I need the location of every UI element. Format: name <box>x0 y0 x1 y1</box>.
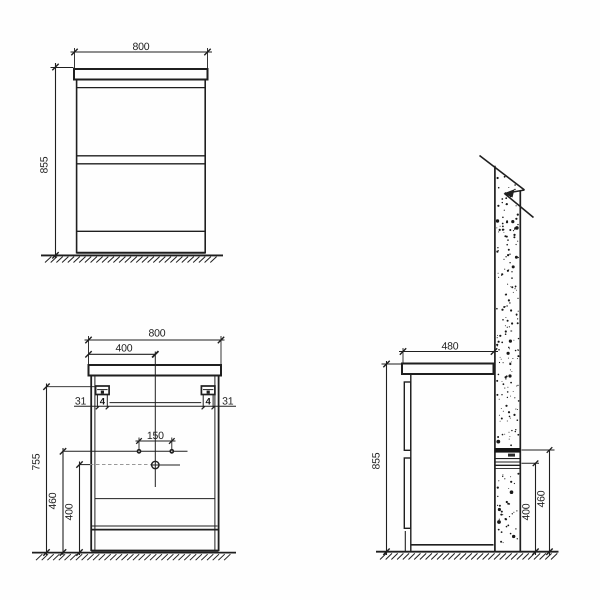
svg-text:480: 480 <box>442 341 459 353</box>
svg-text:855: 855 <box>371 452 383 469</box>
svg-text:400: 400 <box>116 343 133 355</box>
svg-text:755: 755 <box>31 453 43 470</box>
svg-text:31: 31 <box>75 395 87 407</box>
svg-text:855: 855 <box>39 156 51 173</box>
svg-text:460: 460 <box>536 490 548 507</box>
svg-text:800: 800 <box>149 328 166 340</box>
svg-text:400: 400 <box>64 503 76 520</box>
svg-text:31: 31 <box>222 395 234 407</box>
svg-text:400: 400 <box>521 503 533 520</box>
svg-text:460: 460 <box>47 492 59 509</box>
svg-text:150: 150 <box>147 430 164 442</box>
svg-text:800: 800 <box>133 41 150 53</box>
